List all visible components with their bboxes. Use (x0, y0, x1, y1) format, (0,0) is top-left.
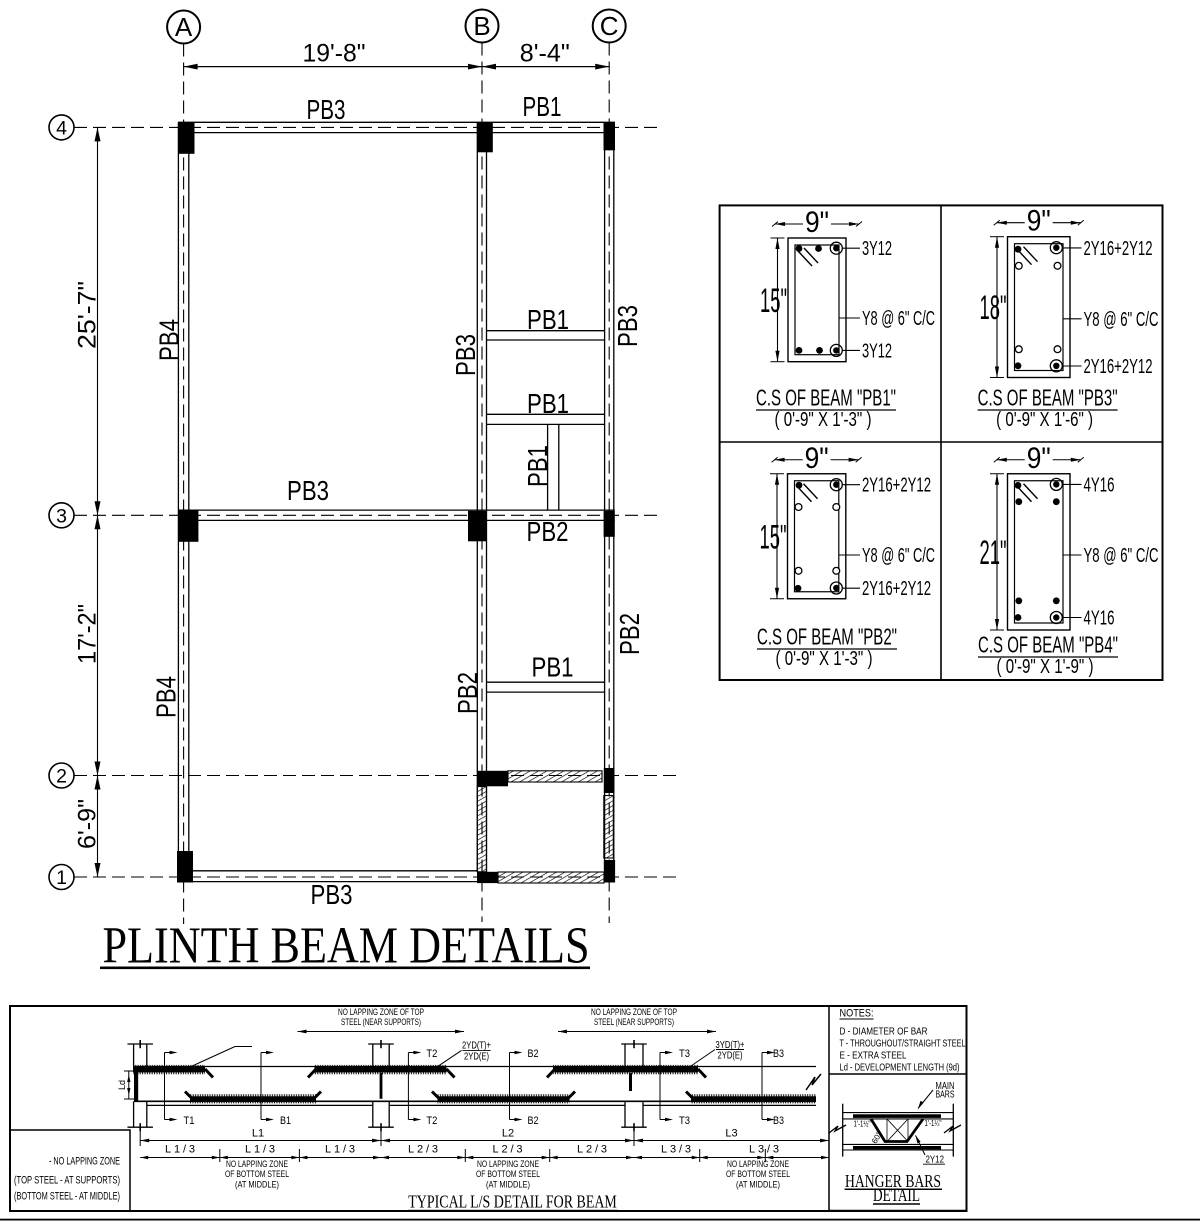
svg-text:( 0'-9" X 1'-6" ): ( 0'-9" X 1'-6" ) (996, 409, 1093, 431)
svg-text:4Y16: 4Y16 (1084, 474, 1115, 496)
svg-text:2Y16+2Y12: 2Y16+2Y12 (1084, 238, 1153, 260)
svg-text:17'-2": 17'-2" (74, 604, 102, 664)
svg-text:PLINTH BEAM DETAILS: PLINTH BEAM DETAILS (103, 918, 590, 975)
svg-text:( 0'-9" X 1'-9" ): ( 0'-9" X 1'-9" ) (997, 656, 1094, 678)
svg-text:DETAIL: DETAIL (873, 1185, 920, 1205)
svg-text:STEEL (NEAR SUPPORTS): STEEL (NEAR SUPPORTS) (341, 1017, 421, 1028)
svg-text:1: 1 (56, 867, 67, 889)
svg-text:19'-8": 19'-8" (303, 40, 366, 68)
svg-text:PB2: PB2 (452, 672, 483, 714)
svg-text:A: A (175, 12, 193, 42)
svg-text:1'-1¼": 1'-1¼" (925, 1118, 942, 1128)
svg-text:1'-1½": 1'-1½" (854, 1119, 871, 1129)
svg-text:OF BOTTOM STEEL: OF BOTTOM STEEL (225, 1169, 289, 1180)
svg-text:4: 4 (56, 117, 67, 139)
svg-text:21": 21" (980, 534, 1007, 572)
svg-text:C.S OF BEAM "PB3": C.S OF BEAM "PB3" (978, 385, 1118, 411)
svg-text:Y8 @ 6" C/C: Y8 @ 6" C/C (862, 308, 935, 330)
svg-text:9": 9" (805, 206, 829, 239)
svg-text:3Y12: 3Y12 (862, 340, 892, 362)
svg-text:9": 9" (1027, 205, 1051, 238)
svg-text:T - THROUGHOUT/STRAIGHT STEEL: T - THROUGHOUT/STRAIGHT STEEL (840, 1039, 966, 1050)
svg-text:E - EXTRA STEEL: E - EXTRA STEEL (840, 1051, 907, 1062)
svg-text:C.S OF BEAM "PB1": C.S OF BEAM "PB1" (756, 385, 896, 411)
svg-text:PB2: PB2 (614, 613, 645, 655)
svg-text:C.S OF BEAM "PB4": C.S OF BEAM "PB4" (978, 632, 1118, 658)
svg-text:L1: L1 (252, 1128, 264, 1140)
svg-text:L1/3: L1/3 (245, 1144, 275, 1156)
svg-text:NOTES:: NOTES: (840, 1008, 874, 1020)
svg-text:B2: B2 (528, 1048, 539, 1060)
svg-text:PB4: PB4 (151, 676, 182, 718)
svg-text:15": 15" (760, 518, 787, 556)
svg-text:L1/3: L1/3 (325, 1144, 355, 1156)
svg-text:L3: L3 (725, 1128, 737, 1140)
svg-text:L3/3: L3/3 (749, 1144, 779, 1156)
svg-text:PB1: PB1 (527, 304, 569, 335)
svg-text:T2: T2 (426, 1048, 437, 1060)
svg-text:B1: B1 (280, 1115, 291, 1127)
svg-text:BARS: BARS (936, 1090, 955, 1101)
svg-text:6'-9": 6'-9" (74, 799, 102, 849)
svg-text:3Y12: 3Y12 (862, 238, 892, 260)
svg-text:25'-7": 25'-7" (74, 281, 102, 349)
svg-text:2Y16+2Y12: 2Y16+2Y12 (862, 475, 931, 497)
svg-text:TYPICAL L/S DETAIL FOR BEAM: TYPICAL L/S DETAIL FOR BEAM (408, 1192, 617, 1212)
svg-text:PB3: PB3 (450, 334, 481, 376)
svg-text:PB3: PB3 (307, 94, 346, 125)
svg-text:T3: T3 (679, 1048, 690, 1060)
svg-text:15": 15" (760, 282, 787, 320)
svg-text:Ld: Ld (117, 1080, 127, 1090)
svg-text:PB3: PB3 (612, 305, 643, 347)
svg-text:9": 9" (1027, 442, 1051, 475)
svg-text:T2: T2 (426, 1115, 437, 1127)
svg-text:2YD(E): 2YD(E) (718, 1051, 743, 1062)
svg-text:L3/3: L3/3 (661, 1144, 691, 1156)
svg-text:PB1: PB1 (523, 91, 562, 122)
svg-text:L2: L2 (502, 1128, 514, 1140)
svg-text:PB2: PB2 (527, 516, 569, 547)
svg-text:2YD(T)+: 2YD(T)+ (462, 1041, 491, 1052)
svg-text:Y8 @ 6" C/C: Y8 @ 6" C/C (862, 545, 935, 567)
svg-text:B2: B2 (528, 1115, 539, 1127)
svg-text:(AT MIDDLE): (AT MIDDLE) (235, 1180, 279, 1191)
svg-text:B: B (473, 11, 490, 41)
svg-text:OF BOTTOM STEEL: OF BOTTOM STEEL (726, 1169, 790, 1180)
svg-text:(BOTTOM STEEL - AT MIDDLE): (BOTTOM STEEL - AT MIDDLE) (14, 1191, 120, 1203)
svg-text:9": 9" (805, 442, 829, 475)
svg-text:2YD(E): 2YD(E) (464, 1052, 489, 1063)
svg-text:2Y16+2Y12: 2Y16+2Y12 (1084, 356, 1153, 378)
svg-text:C: C (600, 11, 619, 41)
svg-text:Y8 @ 6" C/C: Y8 @ 6" C/C (1084, 545, 1159, 567)
svg-text:3: 3 (56, 505, 67, 527)
svg-text:(TOP STEEL - AT SUPPORTS): (TOP STEEL - AT SUPPORTS) (14, 1175, 120, 1187)
svg-text:8'-4": 8'-4" (520, 40, 570, 68)
svg-text:T3: T3 (679, 1115, 690, 1127)
svg-text:OF BOTTOM STEEL: OF BOTTOM STEEL (476, 1169, 540, 1180)
svg-text:PB3: PB3 (287, 475, 329, 506)
svg-text:2Y16+2Y12: 2Y16+2Y12 (862, 578, 931, 600)
svg-text:L2/3: L2/3 (408, 1144, 438, 1156)
svg-text:18": 18" (980, 289, 1007, 327)
svg-text:(AT MIDDLE): (AT MIDDLE) (736, 1180, 780, 1191)
svg-text:PB1: PB1 (532, 652, 574, 683)
svg-text:Y8 @ 6" C/C: Y8 @ 6" C/C (1084, 309, 1159, 331)
svg-text:C.S OF BEAM "PB2": C.S OF BEAM "PB2" (757, 624, 897, 650)
svg-text:(AT MIDDLE): (AT MIDDLE) (486, 1180, 530, 1191)
svg-text:L2/3: L2/3 (577, 1144, 607, 1156)
svg-text:2: 2 (56, 766, 67, 788)
svg-text:D - DIAMETER OF BAR: D - DIAMETER OF BAR (840, 1027, 928, 1038)
svg-text:B3: B3 (773, 1115, 784, 1127)
svg-text:- NO LAPPING ZONE: - NO LAPPING ZONE (49, 1156, 120, 1168)
svg-text:( 0'-9" X 1'-3" ): ( 0'-9" X 1'-3" ) (775, 409, 872, 431)
svg-text:T1: T1 (184, 1115, 195, 1127)
svg-text:PB4: PB4 (154, 319, 185, 361)
svg-text:Ld - DEVELOPMENT LENGTH (9d): Ld - DEVELOPMENT LENGTH (9d) (840, 1063, 960, 1074)
svg-text:PB3: PB3 (311, 879, 353, 910)
svg-text:PB1: PB1 (527, 388, 569, 419)
svg-text:STEEL (NEAR SUPPORTS): STEEL (NEAR SUPPORTS) (594, 1017, 674, 1028)
svg-text:4Y16: 4Y16 (1084, 608, 1115, 630)
svg-text:B3: B3 (773, 1048, 784, 1060)
svg-text:L2/3: L2/3 (493, 1144, 523, 1156)
svg-text:L1/3: L1/3 (165, 1144, 195, 1156)
svg-text:( 0'-9" X 1'-3" ): ( 0'-9" X 1'-3" ) (776, 648, 873, 670)
svg-text:PB1: PB1 (522, 445, 553, 487)
